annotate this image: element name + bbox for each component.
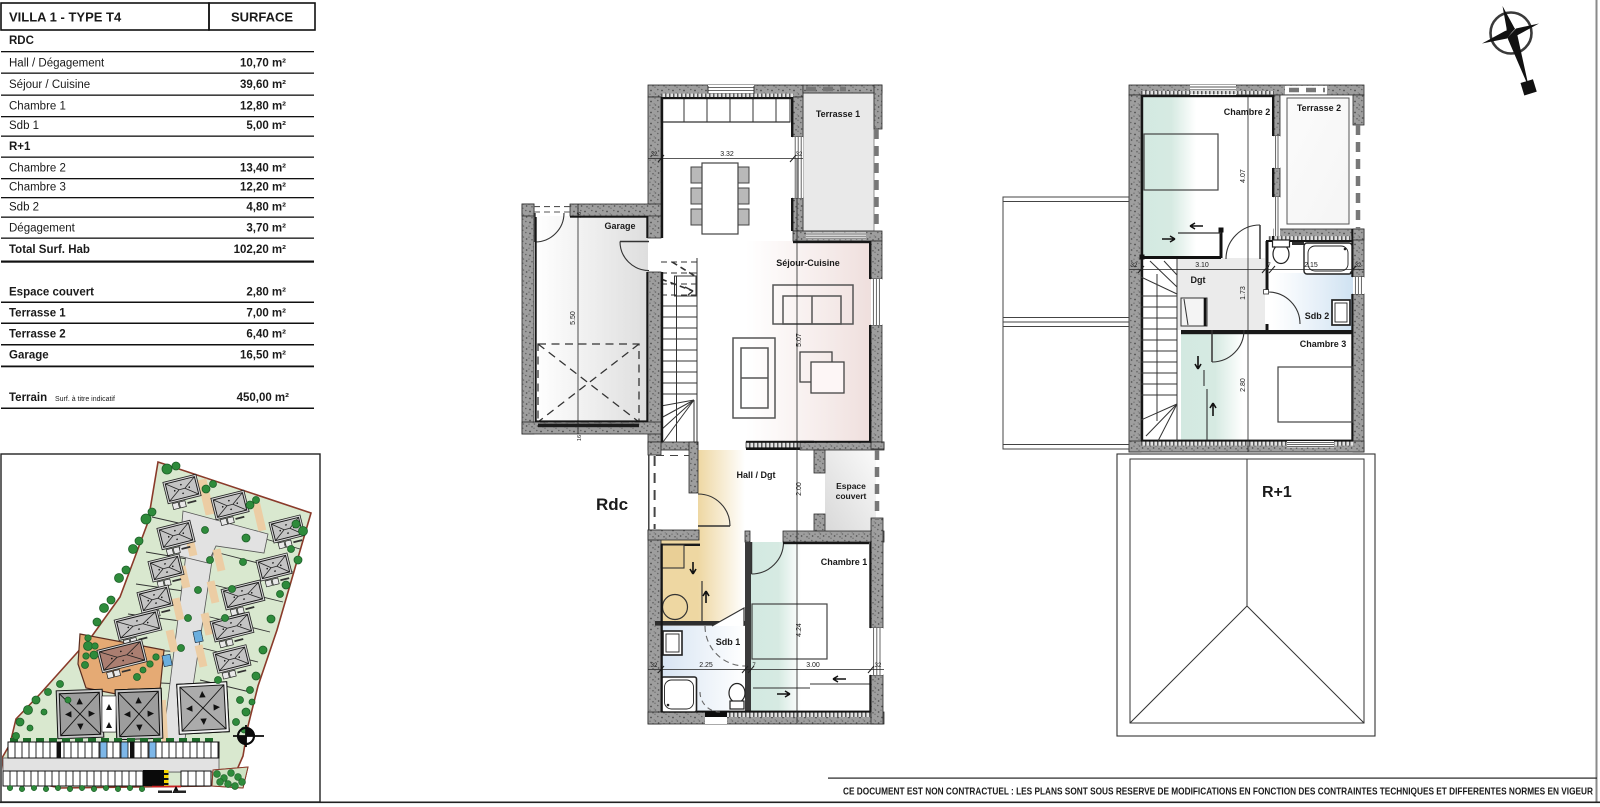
svg-text:Terrasse 2: Terrasse 2 xyxy=(9,329,66,341)
svg-text:Chambre 3: Chambre 3 xyxy=(9,182,66,194)
svg-text:32: 32 xyxy=(1131,263,1138,269)
svg-text:SURFACE: SURFACE xyxy=(231,10,293,25)
svg-text:32: 32 xyxy=(875,663,882,669)
svg-text:R+1: R+1 xyxy=(9,141,31,153)
svg-text:4.07: 4.07 xyxy=(1240,169,1247,183)
svg-text:2,80 m²: 2,80 m² xyxy=(246,287,286,299)
svg-text:16: 16 xyxy=(577,435,583,441)
svg-text:32: 32 xyxy=(651,663,658,669)
svg-text:2.15: 2.15 xyxy=(1304,262,1318,269)
svg-text:32: 32 xyxy=(796,152,803,158)
svg-text:4,80 m²: 4,80 m² xyxy=(246,202,286,214)
svg-text:Chambre 2: Chambre 2 xyxy=(1224,107,1271,117)
svg-text:5.07: 5.07 xyxy=(796,333,803,347)
svg-text:R+1: R+1 xyxy=(1262,484,1292,501)
svg-text:5.50: 5.50 xyxy=(570,311,577,325)
svg-text:7,00 m²: 7,00 m² xyxy=(246,308,286,320)
svg-text:Total Surf. Hab: Total Surf. Hab xyxy=(9,244,90,256)
svg-text:10,70 m²: 10,70 m² xyxy=(240,58,286,70)
svg-text:Sdb 2: Sdb 2 xyxy=(9,202,39,214)
svg-text:3.32: 3.32 xyxy=(720,151,734,158)
svg-text:Espace couvert: Espace couvert xyxy=(9,287,94,299)
svg-text:Hall / Dégagement: Hall / Dégagement xyxy=(9,58,105,70)
svg-text:CE DOCUMENT EST NON CONTRACTUE: CE DOCUMENT EST NON CONTRACTUEL : LES PL… xyxy=(843,787,1593,798)
svg-text:Garage: Garage xyxy=(604,221,635,231)
svg-text:Terrasse 1: Terrasse 1 xyxy=(9,308,66,320)
svg-text:Terrain: Terrain xyxy=(9,392,47,404)
svg-text:5,00 m²: 5,00 m² xyxy=(246,120,286,132)
svg-text:16,50 m²: 16,50 m² xyxy=(240,350,286,362)
svg-text:couvert: couvert xyxy=(836,491,867,501)
svg-text:Espace: Espace xyxy=(836,481,866,491)
svg-text:3.10: 3.10 xyxy=(1195,262,1209,269)
svg-text:RDC: RDC xyxy=(9,35,34,47)
svg-text:32: 32 xyxy=(651,152,658,158)
svg-text:39,60 m²: 39,60 m² xyxy=(240,79,286,91)
svg-text:6,40 m²: 6,40 m² xyxy=(246,329,286,341)
svg-text:4.24: 4.24 xyxy=(796,623,803,637)
svg-text:450,00 m²: 450,00 m² xyxy=(237,392,290,404)
svg-text:Terrasse 2: Terrasse 2 xyxy=(1297,103,1341,113)
svg-text:Sdb 2: Sdb 2 xyxy=(1305,311,1330,321)
svg-text:3,70 m²: 3,70 m² xyxy=(246,223,286,235)
svg-text:12,80 m²: 12,80 m² xyxy=(240,101,286,113)
svg-text:Dgt: Dgt xyxy=(1191,275,1206,285)
svg-text:2.00: 2.00 xyxy=(796,482,803,496)
svg-text:Chambre 1: Chambre 1 xyxy=(821,557,868,567)
svg-text:Rdc: Rdc xyxy=(596,495,628,514)
svg-text:VILLA 1 - TYPE T4: VILLA 1 - TYPE T4 xyxy=(9,10,122,25)
svg-text:Séjour-Cuisine: Séjour-Cuisine xyxy=(776,258,840,268)
svg-text:Sdb 1: Sdb 1 xyxy=(9,120,39,132)
svg-text:Chambre 1: Chambre 1 xyxy=(9,101,66,113)
svg-text:2.25: 2.25 xyxy=(699,662,713,669)
svg-text:Chambre 2: Chambre 2 xyxy=(9,163,66,175)
svg-text:Séjour / Cuisine: Séjour / Cuisine xyxy=(9,79,90,91)
svg-text:Surf. à titre indicatif: Surf. à titre indicatif xyxy=(55,396,115,403)
svg-text:3.00: 3.00 xyxy=(806,662,820,669)
svg-text:32: 32 xyxy=(1355,263,1362,269)
svg-text:1.73: 1.73 xyxy=(1240,286,1247,300)
svg-text:102,20 m²: 102,20 m² xyxy=(234,244,287,256)
svg-text:2.80: 2.80 xyxy=(1240,378,1247,392)
svg-text:Terrasse 1: Terrasse 1 xyxy=(816,109,860,119)
svg-text:Sdb 1: Sdb 1 xyxy=(716,637,741,647)
svg-text:12,20 m²: 12,20 m² xyxy=(240,182,286,194)
svg-text:Chambre 3: Chambre 3 xyxy=(1300,339,1347,349)
svg-text:Hall / Dgt: Hall / Dgt xyxy=(736,470,775,480)
svg-text:Dégagement: Dégagement xyxy=(9,223,76,235)
svg-text:Garage: Garage xyxy=(9,350,49,362)
svg-text:13,40 m²: 13,40 m² xyxy=(240,163,286,175)
